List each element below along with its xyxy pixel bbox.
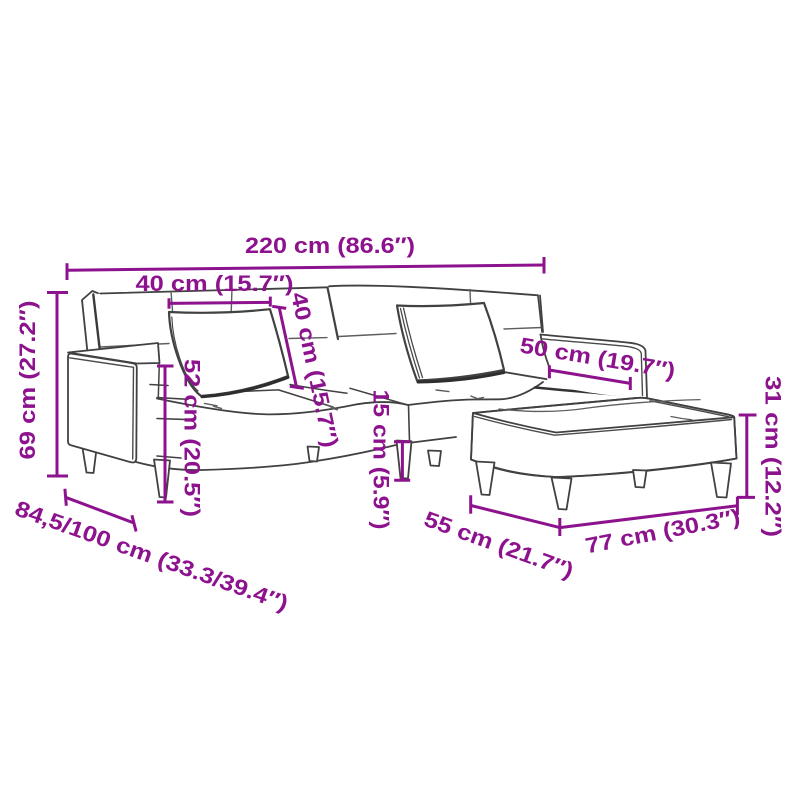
svg-text:15 cm (5.9″): 15 cm (5.9″) [369,390,394,530]
svg-text:220 cm (86.6″): 220 cm (86.6″) [245,233,415,258]
svg-text:31 cm (12.2″): 31 cm (12.2″) [761,376,786,537]
svg-text:40 cm (15.7″): 40 cm (15.7″) [136,271,294,296]
svg-text:69 cm (27.2″): 69 cm (27.2″) [15,301,40,460]
svg-text:52 cm (20.5″): 52 cm (20.5″) [180,359,205,517]
